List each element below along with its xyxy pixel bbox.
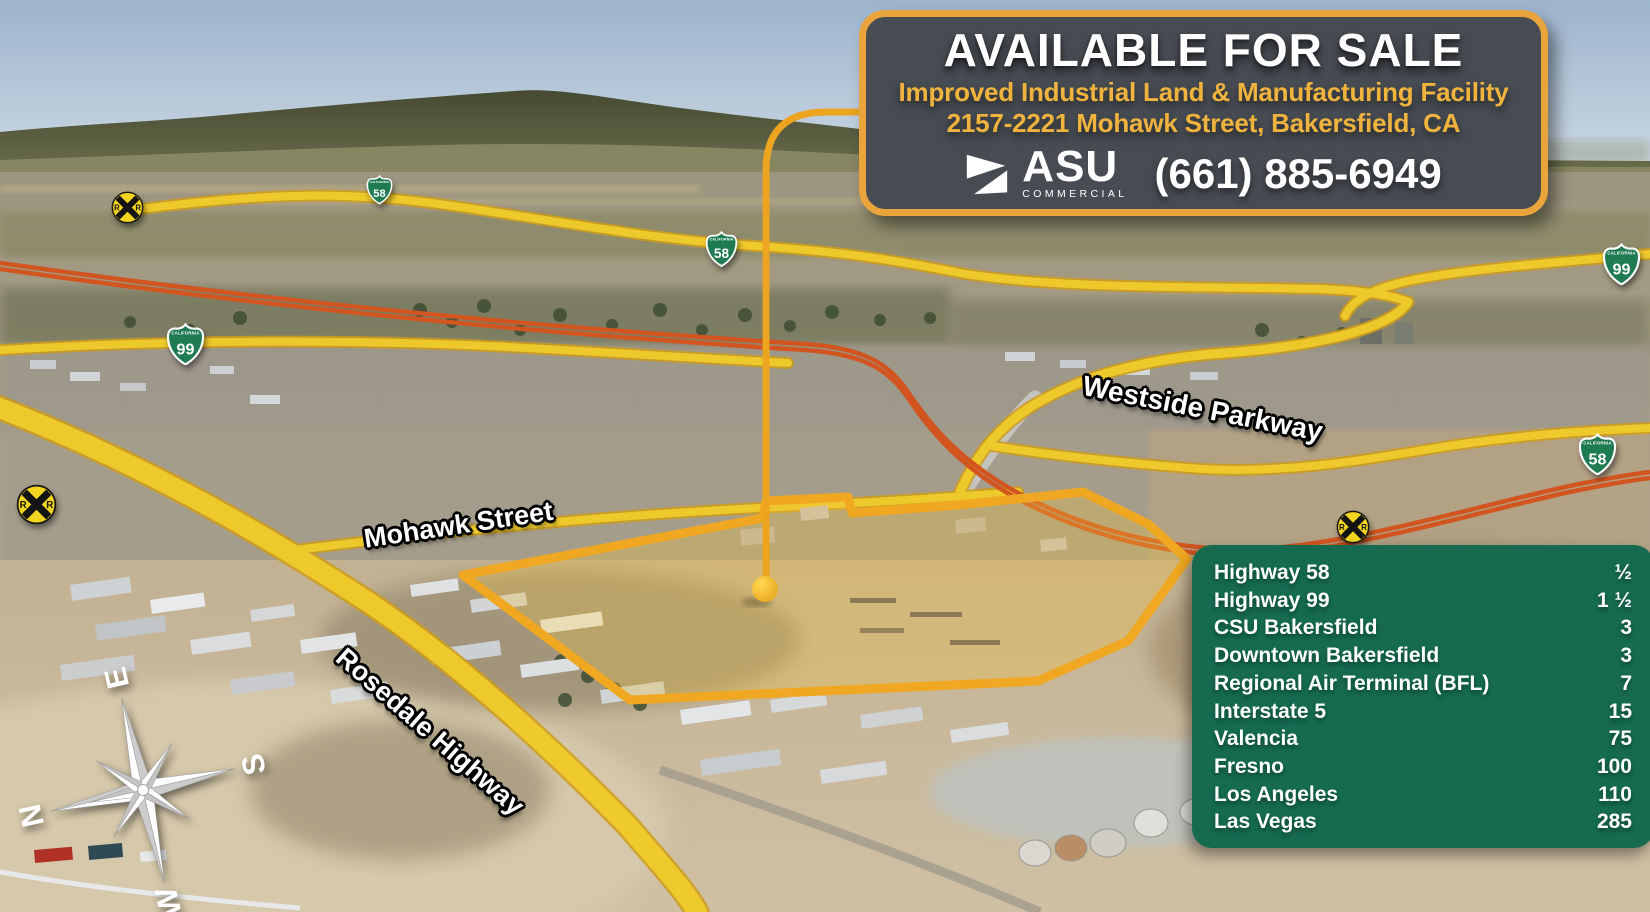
railroad-crossing-sign: RR [111, 191, 144, 224]
distance-value: ½ [1614, 559, 1632, 587]
brand-subname: COMMERCIAL [1022, 188, 1127, 200]
phone-number: (661) 885-6949 [1154, 150, 1441, 198]
railroad-crossing-sign: RR [16, 484, 57, 525]
destination-label: Interstate 5 [1214, 698, 1326, 726]
svg-text:R: R [19, 499, 26, 510]
svg-text:99: 99 [1612, 260, 1630, 278]
route-shield-99: CALIFORNIA99 [1602, 243, 1641, 286]
destination-label: Los Angeles [1214, 781, 1338, 809]
svg-text:R: R [46, 499, 53, 510]
destination-label: Highway 58 [1214, 559, 1330, 587]
distance-value: 110 [1598, 781, 1632, 809]
asu-logo-icon [965, 152, 1009, 196]
compass-s: S [234, 750, 273, 778]
svg-text:58: 58 [1588, 450, 1606, 468]
urban-band [0, 345, 1650, 435]
asu-logo-text: ASU COMMERCIAL [1022, 148, 1127, 200]
destination-label: Regional Air Terminal (BFL) [1214, 670, 1489, 698]
svg-text:CALIFORNIA: CALIFORNIA [709, 237, 733, 241]
banner-subtitle-1: Improved Industrial Land & Manufacturing… [899, 77, 1509, 108]
banner-contact-row: ASU COMMERCIAL (661) 885-6949 [965, 148, 1441, 200]
destination-label: Fresno [1214, 753, 1284, 781]
svg-text:R: R [1339, 523, 1345, 532]
svg-text:99: 99 [176, 340, 194, 358]
svg-text:R: R [1361, 523, 1367, 532]
distance-value: 15 [1609, 698, 1632, 726]
distance-value: 75 [1609, 725, 1632, 753]
table-row: Los Angeles110 [1214, 781, 1632, 809]
table-row: Fresno100 [1214, 753, 1632, 781]
compass-w: W [148, 883, 189, 912]
table-row: Valencia75 [1214, 725, 1632, 753]
flyer-canvas: AVAILABLE FOR SALE Improved Industrial L… [0, 0, 1650, 912]
route-shield-99: CALIFORNIA99 [166, 323, 205, 366]
svg-text:CALIFORNIA: CALIFORNIA [1583, 440, 1611, 445]
svg-text:CALIFORNIA: CALIFORNIA [1607, 250, 1635, 255]
railroad-crossing-sign: RR [1336, 510, 1370, 544]
destination-label: Downtown Bakersfield [1214, 642, 1439, 670]
route-shield-58: CALIFORNIA58 [1578, 433, 1617, 476]
table-row: Interstate 515 [1214, 698, 1632, 726]
destination-label: CSU Bakersfield [1214, 614, 1377, 642]
table-row: Highway 991 ½ [1214, 587, 1632, 615]
destination-label: Las Vegas [1214, 808, 1317, 836]
distance-value: 1 ½ [1597, 587, 1632, 615]
compass-rose: N E S W [13, 660, 273, 912]
brand-name: ASU [1022, 148, 1118, 186]
distance-table-rows: Highway 58½Highway 991 ½CSU Bakersfield3… [1214, 559, 1632, 836]
svg-text:CALIFORNIA: CALIFORNIA [171, 330, 199, 335]
table-row: Regional Air Terminal (BFL)7 [1214, 670, 1632, 698]
sale-banner: AVAILABLE FOR SALE Improved Industrial L… [859, 10, 1548, 216]
table-row: Highway 58½ [1214, 559, 1632, 587]
svg-text:R: R [113, 203, 119, 212]
distance-value: 7 [1620, 670, 1632, 698]
destination-label: Highway 99 [1214, 587, 1330, 615]
route-shield-58: CALIFORNIA58 [366, 175, 393, 205]
distance-value: 3 [1620, 642, 1632, 670]
banner-title: AVAILABLE FOR SALE [944, 23, 1464, 77]
table-row: Las Vegas285 [1214, 808, 1632, 836]
distance-value: 3 [1620, 614, 1632, 642]
banner-address: 2157-2221 Mohawk Street, Bakersfield, CA [947, 108, 1461, 139]
svg-text:58: 58 [713, 246, 729, 261]
svg-text:58: 58 [373, 188, 385, 200]
destination-label: Valencia [1214, 725, 1298, 753]
table-row: CSU Bakersfield3 [1214, 614, 1632, 642]
table-row: Downtown Bakersfield3 [1214, 642, 1632, 670]
distance-value: 100 [1597, 753, 1632, 781]
compass-e: E [97, 664, 136, 692]
route-shield-58: CALIFORNIA58 [705, 231, 738, 267]
svg-text:R: R [135, 203, 141, 212]
compass-n: N [13, 801, 51, 831]
svg-text:CALIFORNIA: CALIFORNIA [369, 180, 389, 184]
distance-value: 285 [1597, 808, 1632, 836]
distance-table: Highway 58½Highway 991 ½CSU Bakersfield3… [1192, 545, 1650, 848]
